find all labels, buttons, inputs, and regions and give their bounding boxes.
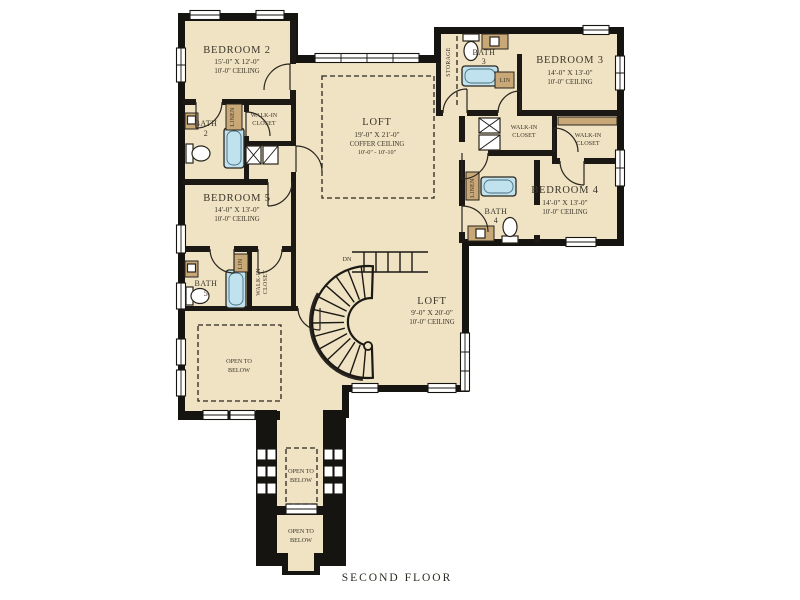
window xyxy=(177,283,186,309)
open-below-entry-line2: BELOW xyxy=(290,537,312,544)
room-label-lin5: LIN xyxy=(238,258,244,269)
room-number-bath4: 4 xyxy=(494,216,499,225)
window xyxy=(177,339,186,365)
bathtub xyxy=(481,177,516,196)
room-number-bath5: 5 xyxy=(204,289,209,298)
room-label-linen2: LINEN xyxy=(230,107,236,127)
window xyxy=(616,150,625,186)
room-label-bath2: BATH xyxy=(195,119,218,128)
column xyxy=(257,483,276,494)
window xyxy=(352,384,378,393)
wall-segment xyxy=(290,20,296,64)
window xyxy=(286,504,317,514)
sink-vanity xyxy=(482,34,508,49)
wall-segment xyxy=(436,62,441,112)
window xyxy=(177,48,186,82)
open-below-main-line1: OPEN TO xyxy=(226,358,252,365)
wall-segment xyxy=(178,411,280,420)
room-label-wic4b-line1: WALK-IN xyxy=(575,132,602,139)
dims-loft-lower: 9'-0" X 20'-0" xyxy=(411,308,453,317)
plan-caption: SECOND FLOOR xyxy=(342,572,453,584)
floor-plan-drawing: BEDROOM 2 15'-0" X 12'-0" 10'-0" CEILING… xyxy=(0,0,800,600)
room-label-bath4: BATH xyxy=(485,207,508,216)
ceiling-type-loft-upper: COFFER CEILING xyxy=(350,141,405,148)
window xyxy=(190,11,220,20)
open-below-entry-line1: OPEN TO xyxy=(288,528,314,535)
window xyxy=(583,26,609,35)
room-label-wic4a-line1: WALK-IN xyxy=(511,124,538,131)
wall-segment xyxy=(182,179,268,185)
wall-segment xyxy=(467,110,498,116)
floor-plan-page: BEDROOM 2 15'-0" X 12'-0" 10'-0" CEILING… xyxy=(0,0,800,600)
sink-vanity xyxy=(185,261,198,277)
room-label-lin3: LIN xyxy=(500,78,511,84)
toilet xyxy=(186,144,210,163)
wall-segment xyxy=(182,246,210,252)
wall-segment xyxy=(291,102,296,146)
dims-loft-upper: 19'-0" X 21'-0" xyxy=(354,130,400,139)
room-label-storage: STORAGE xyxy=(446,47,452,76)
room-label-wic5-line2: CLOSET xyxy=(263,270,269,294)
washer xyxy=(246,146,261,164)
window xyxy=(230,411,255,420)
wall-segment xyxy=(488,150,552,156)
open-below-main-line2: BELOW xyxy=(228,367,250,374)
closet-shelf xyxy=(558,117,617,125)
open-below-balcony-line2: BELOW xyxy=(290,477,312,484)
stair-newel xyxy=(364,342,372,350)
room-label-wic5: WALK-IN CLOSET xyxy=(256,268,269,296)
ceiling-bedroom5: 10'-0" CEILING xyxy=(214,216,259,223)
wall-segment xyxy=(244,141,296,146)
dims-bedroom3: 14'-0" X 13'-0" xyxy=(547,68,593,77)
room-label-lin4: LINEN xyxy=(470,178,476,198)
ceiling-loft-lower: 10'-0" CEILING xyxy=(409,319,454,326)
column xyxy=(324,483,343,494)
window xyxy=(256,11,284,20)
dims-bedroom2: 15'-0" X 12'-0" xyxy=(214,57,260,66)
window xyxy=(315,54,419,63)
window xyxy=(461,333,470,391)
room-label-bath5: BATH xyxy=(195,279,218,288)
room-number-bath3: 3 xyxy=(482,57,487,66)
wall-segment xyxy=(244,102,249,112)
stair-dn-label: DN xyxy=(343,256,352,263)
balcony-floor xyxy=(277,410,323,506)
window xyxy=(177,370,186,396)
column xyxy=(257,449,276,460)
window xyxy=(428,384,456,393)
dryer xyxy=(479,135,500,150)
dims-bedroom5: 14'-0" X 13'-0" xyxy=(214,205,260,214)
ceiling-bedroom4: 10'-0" CEILING xyxy=(542,209,587,216)
room-label-bedroom5: BEDROOM 5 xyxy=(203,193,271,204)
room-label-loft-upper: LOFT xyxy=(362,117,391,128)
sink-vanity xyxy=(468,226,494,241)
room-label-wic5-line1: WALK-IN xyxy=(256,268,262,296)
wall-segment xyxy=(291,179,296,248)
bathtub xyxy=(226,270,246,308)
wall-segment xyxy=(234,246,258,252)
room-label-wic4a-line2: CLOSET xyxy=(512,132,536,139)
room-label-bedroom4: BEDROOM 4 xyxy=(531,185,599,196)
wall-segment xyxy=(342,385,349,418)
washer xyxy=(479,118,500,133)
wall-segment xyxy=(459,232,465,243)
room-number-bath2: 2 xyxy=(204,129,209,138)
room-label-loft-lower: LOFT xyxy=(417,296,446,307)
wall-segment xyxy=(182,99,196,105)
room-label-bath3: BATH xyxy=(473,48,496,57)
ceiling-bedroom2: 10'-0" CEILING xyxy=(214,68,259,75)
room-label-bedroom3: BEDROOM 3 xyxy=(536,55,604,66)
open-below-balcony-line1: OPEN TO xyxy=(288,468,314,475)
wall-segment xyxy=(459,116,465,142)
column xyxy=(257,466,276,477)
ceiling-range-loft-upper: 10'-0" - 10'-10" xyxy=(358,149,397,156)
toilet xyxy=(502,218,518,244)
wall-segment xyxy=(291,248,296,306)
window xyxy=(203,411,228,420)
room-label-wic4b-line2: CLOSET xyxy=(576,140,600,147)
room-label-wic2-line1: WALK-IN xyxy=(251,112,278,119)
window xyxy=(177,225,186,253)
room-label-wic2-line2: CLOSET xyxy=(252,120,276,127)
column xyxy=(324,449,343,460)
wall-segment xyxy=(520,110,621,116)
wall-segment xyxy=(534,160,540,205)
window xyxy=(616,56,625,90)
dims-bedroom4: 14'-0" X 13'-0" xyxy=(542,198,588,207)
stoop-floor xyxy=(288,553,314,571)
bathtub xyxy=(224,128,244,168)
window xyxy=(566,238,596,247)
dryer xyxy=(263,146,278,164)
room-label-bedroom2: BEDROOM 2 xyxy=(203,45,271,56)
wall-segment xyxy=(436,110,443,116)
bathtub xyxy=(462,66,498,86)
wall-segment xyxy=(534,235,540,243)
column xyxy=(324,466,343,477)
ceiling-bedroom3: 10'-0" CEILING xyxy=(547,79,592,86)
